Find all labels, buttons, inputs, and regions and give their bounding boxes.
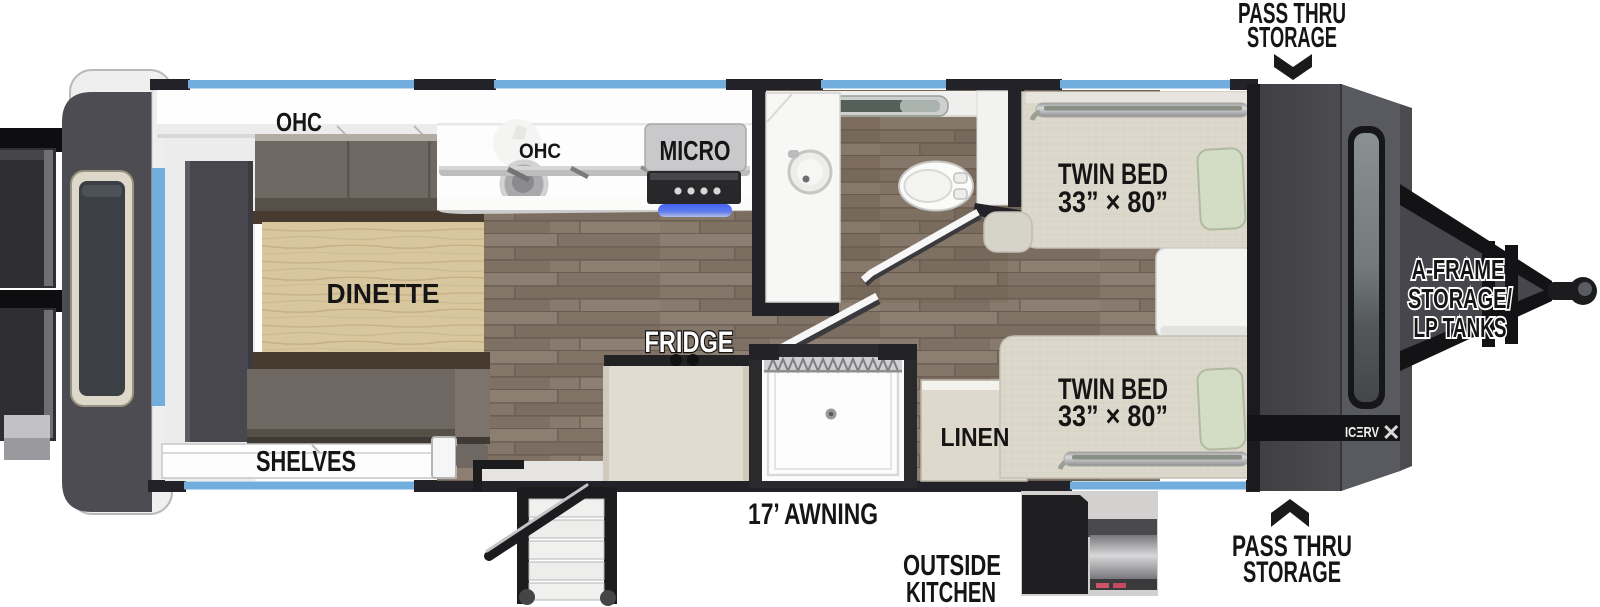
svg-text:FRIDGE: FRIDGE	[645, 326, 734, 359]
svg-text:SHELVES: SHELVES	[256, 446, 356, 478]
svg-text:✕: ✕	[1382, 420, 1400, 445]
svg-text:STORAGE/: STORAGE/	[1408, 283, 1512, 314]
svg-text:MICRO: MICRO	[660, 135, 731, 166]
svg-text:OHC: OHC	[276, 107, 322, 137]
svg-text:17’ AWNING: 17’ AWNING	[748, 498, 878, 531]
svg-text:A-FRAME: A-FRAME	[1412, 254, 1505, 285]
svg-text:33” × 80”: 33” × 80”	[1058, 186, 1168, 219]
svg-text:LINEN: LINEN	[941, 422, 1010, 452]
svg-text:OHC: OHC	[519, 140, 561, 163]
svg-text:STORAGE: STORAGE	[1243, 556, 1341, 589]
svg-text:DINETTE: DINETTE	[327, 278, 440, 309]
svg-text:KITCHEN: KITCHEN	[906, 577, 996, 607]
svg-text:STORAGE: STORAGE	[1247, 22, 1337, 54]
svg-text:LP TANKS: LP TANKS	[1414, 312, 1507, 343]
svg-text:33” × 80”: 33” × 80”	[1058, 400, 1168, 433]
svg-text:ICΞRV: ICΞRV	[1345, 424, 1379, 441]
